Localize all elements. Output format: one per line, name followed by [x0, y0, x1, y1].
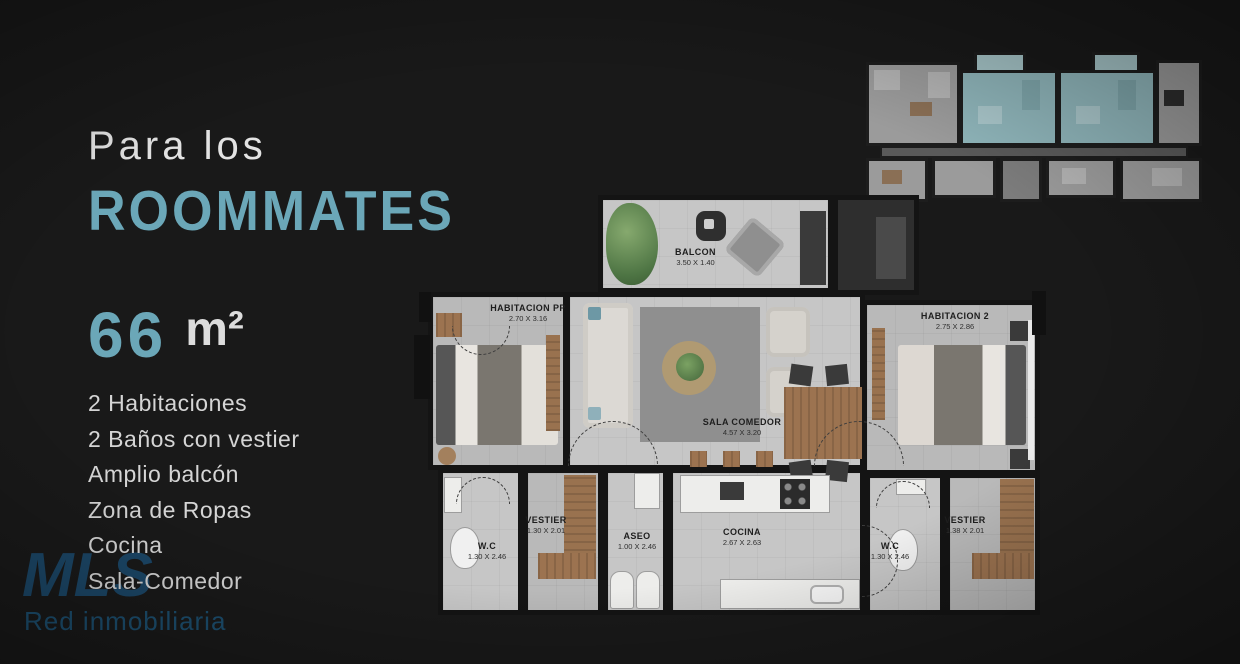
area-value: 66: [88, 298, 167, 372]
dryer: [636, 571, 660, 609]
sofa-pillow: [588, 307, 601, 320]
label-sala-comedor: SALA COMEDOR 4.57 X 3.20: [690, 417, 794, 437]
sofa-pillow: [588, 407, 601, 420]
mini-unit-highlight-b: [1058, 70, 1156, 146]
mini-room-detail: [978, 106, 1002, 124]
label-aseo: ASEO 1.00 X 2.46: [592, 531, 682, 551]
nightstand: [1010, 321, 1030, 341]
mini-room-detail: [1076, 106, 1100, 124]
label-habitacion-pp: HABITACION PP 2.70 X 3.16: [473, 303, 583, 323]
area-figure: 66 m²: [88, 298, 244, 372]
label-habitacion-2: HABITACION 2 2.75 X 2.86: [905, 311, 1005, 331]
logo-tagline: Red inmobiliaria: [24, 606, 226, 637]
mini-unit-bottom: [932, 158, 996, 198]
mini-room-detail: [928, 72, 950, 98]
armchair: [766, 307, 810, 357]
mini-room-detail: [1022, 80, 1040, 110]
laundry-bench: [876, 217, 906, 279]
mini-room-detail: [1164, 90, 1184, 106]
feature-item: 2 Habitaciones: [88, 386, 300, 422]
table-decor: [704, 219, 714, 229]
feature-item: Amplio balcón: [88, 457, 300, 493]
bed-pp: [436, 345, 558, 445]
wall-segment: [1032, 291, 1046, 335]
area-unit: m²: [185, 302, 244, 357]
floor-lamp: [438, 447, 456, 465]
label-wc-right: W.C 1.30 X 2.46: [845, 541, 935, 561]
cutting-board: [720, 482, 744, 500]
nightstand: [1010, 449, 1030, 469]
closet: [538, 553, 596, 579]
bar-stool: [723, 451, 740, 467]
feature-item: Zona de Ropas: [88, 493, 300, 529]
label-balcon: BALCON 3.50 X 1.40: [643, 247, 748, 267]
mini-room-detail: [910, 102, 932, 116]
tv-console-2: [872, 328, 885, 420]
bed-2: [898, 345, 1026, 445]
label-wc-left: W.C 1.30 X 2.46: [442, 541, 532, 561]
curtain: [1028, 320, 1034, 460]
washer: [610, 571, 634, 609]
plant: [606, 203, 658, 285]
label-cocina: COCINA 2.67 X 2.63: [697, 527, 787, 547]
mini-corridor: [880, 146, 1188, 158]
mini-room-detail: [1062, 168, 1086, 184]
feature-list: 2 Habitaciones 2 Baños con vestier Ampli…: [88, 386, 300, 599]
subtitle: Para los: [88, 124, 418, 169]
balcony-bench: [800, 211, 826, 285]
tv-console: [546, 335, 560, 431]
building-floor-overview: [866, 50, 1202, 202]
apartment-floor-plan: BALCON 3.50 X 1.40 HABITACION PP 2.70 X …: [428, 195, 1040, 620]
mini-room-detail: [1118, 80, 1136, 110]
closet: [972, 553, 1034, 579]
bar-stool: [690, 451, 707, 467]
label-vestier-right: VESTIER 1.38 X 2.01: [920, 515, 1010, 535]
mini-room-detail: [882, 170, 902, 184]
left-panel: Para los ROOMMATES: [88, 124, 418, 239]
dining-chair: [789, 364, 814, 387]
wall-segment: [414, 335, 430, 399]
bar-stool: [756, 451, 773, 467]
cooktop: [780, 479, 810, 509]
page-title: ROOMMATES: [88, 179, 418, 244]
dining-chair: [825, 364, 849, 386]
center-plant: [676, 353, 704, 381]
mini-room-detail: [1152, 168, 1182, 186]
label-vestier-left: VESTIER 1.30 X 2.01: [506, 515, 586, 535]
kitchen-sink: [810, 585, 844, 604]
feature-item: Sala-Comedor: [88, 564, 300, 600]
feature-item: Cocina: [88, 528, 300, 564]
feature-item: 2 Baños con vestier: [88, 422, 300, 458]
mini-room-detail: [874, 70, 900, 90]
laundry-shelf: [634, 473, 660, 509]
wall-segment: [419, 292, 431, 322]
mini-unit-highlight-a: [960, 70, 1058, 146]
